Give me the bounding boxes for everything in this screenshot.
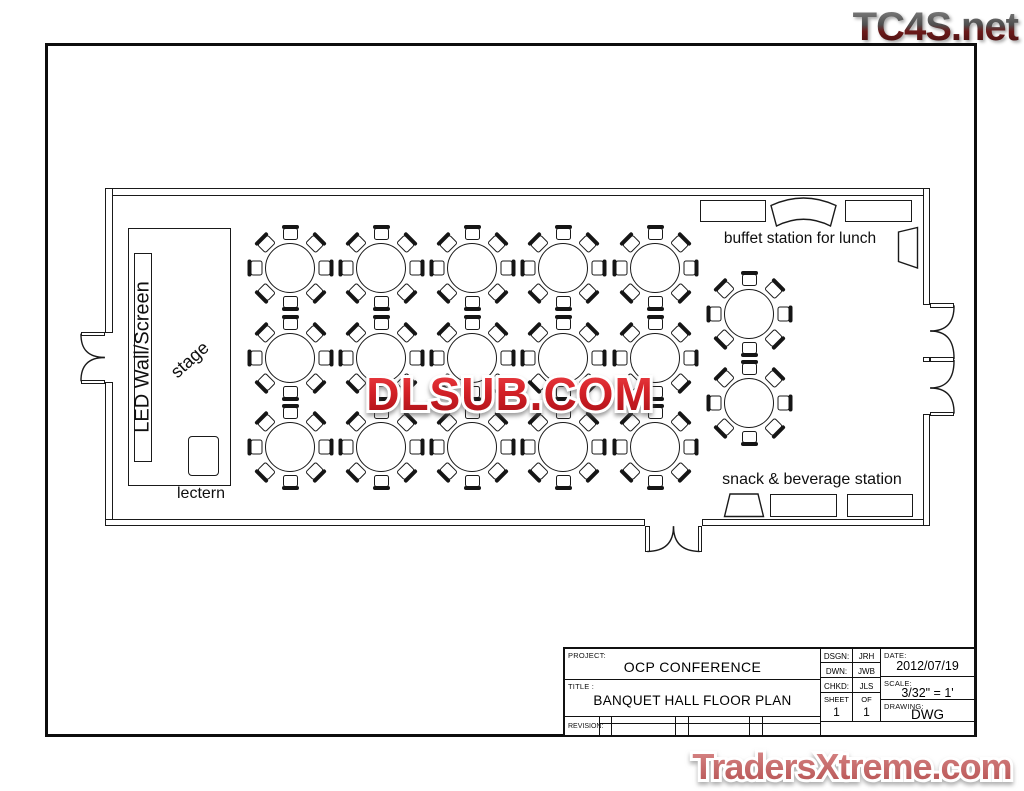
title-label: TITLE :: [568, 682, 594, 691]
project-cell: PROJECT: OCP CONFERENCE: [565, 649, 821, 680]
dwn-label: DWN:: [821, 667, 852, 676]
table-top: [724, 378, 774, 428]
chair: [318, 351, 330, 366]
chair: [648, 475, 663, 487]
snack-serving-board: [725, 494, 764, 517]
chair: [465, 407, 480, 419]
table-top: [724, 289, 774, 339]
chair: [374, 475, 389, 487]
door-swing-arc: [81, 334, 105, 358]
title-block: PROJECT: OCP CONFERENCE TITLE : BANQUET …: [563, 647, 976, 737]
of-label: OF: [853, 695, 880, 704]
drawing-value: DWG: [881, 707, 974, 722]
chair: [523, 351, 535, 366]
chair: [683, 351, 695, 366]
chair: [709, 307, 721, 322]
chair: [465, 318, 480, 330]
scale-cell: SCALE: 3/32" = 1': [881, 677, 974, 700]
chair: [556, 386, 571, 398]
chair: [648, 228, 663, 240]
table-top: [356, 422, 406, 472]
snack-station-label: snack & beverage station: [722, 471, 902, 489]
door-swing-arc: [930, 388, 954, 414]
chair: [683, 261, 695, 276]
chair: [318, 440, 330, 455]
chair: [283, 318, 298, 330]
chair: [615, 261, 627, 276]
revision-divider: [749, 717, 750, 735]
table-top: [356, 333, 406, 383]
chair: [432, 261, 444, 276]
door-swing-arc: [81, 358, 105, 382]
chair: [615, 440, 627, 455]
table-top: [630, 243, 680, 293]
dwn-value: JWB: [853, 667, 880, 676]
chair: [283, 386, 298, 398]
chair: [432, 440, 444, 455]
chair: [523, 440, 535, 455]
chair: [709, 396, 721, 411]
chair: [374, 407, 389, 419]
chair: [556, 475, 571, 487]
table-top: [356, 243, 406, 293]
chair: [283, 296, 298, 308]
door-swing-arc: [647, 526, 673, 551]
chair: [374, 228, 389, 240]
dwn-label-cell: DWN:: [821, 663, 853, 678]
chair: [465, 296, 480, 308]
chkd-label-cell: CHKD:: [821, 678, 853, 693]
chair: [742, 363, 757, 375]
led-wall-label: LED Wall/Screen: [132, 281, 155, 433]
dsgn-value: JRH: [853, 652, 880, 661]
sheet-number: 1: [821, 705, 852, 719]
lectern: [188, 436, 219, 476]
door-swing-arc: [930, 305, 954, 331]
chair: [648, 296, 663, 308]
chair: [523, 261, 535, 276]
chair: [409, 351, 421, 366]
revision-divider: [675, 717, 676, 735]
dsgn-label: DSGN:: [821, 652, 852, 661]
chair: [556, 407, 571, 419]
chair: [615, 351, 627, 366]
of-number: 1: [853, 705, 880, 719]
snack-table: [770, 494, 837, 517]
chair: [556, 296, 571, 308]
chair: [648, 407, 663, 419]
dsgn-label-cell: DSGN:: [821, 649, 853, 663]
chair: [648, 318, 663, 330]
buffet-table: [845, 200, 912, 222]
chair: [500, 261, 512, 276]
revision-cell: REVISION:: [565, 717, 821, 735]
chair: [318, 261, 330, 276]
table-top: [538, 422, 588, 472]
serving-board-right-wall: [899, 228, 918, 269]
drawing-title: BANQUET HALL FLOOR PLAN: [565, 693, 820, 708]
chair: [374, 386, 389, 398]
chair: [591, 261, 603, 276]
drawing-cell: DRAWING: DWG: [881, 700, 974, 722]
chair: [409, 440, 421, 455]
chair: [283, 407, 298, 419]
chair: [777, 307, 789, 322]
chair: [742, 274, 757, 286]
table-top: [630, 333, 680, 383]
dwn-value-cell: JWB: [853, 663, 881, 678]
buffet-curved-table: [771, 198, 836, 226]
revision-divider: [688, 717, 689, 735]
chair: [742, 342, 757, 354]
revision-divider: [762, 717, 763, 735]
buffet-table: [700, 200, 766, 222]
chair: [683, 440, 695, 455]
blank-cell: [821, 722, 974, 735]
chkd-value-cell: JLS: [853, 678, 881, 693]
table-top: [265, 243, 315, 293]
chair: [374, 296, 389, 308]
revision-divider: [599, 717, 600, 735]
date-cell: DATE: 2012/07/19: [881, 649, 974, 677]
snack-table: [847, 494, 914, 517]
table-top: [265, 422, 315, 472]
sheet-cell: SHEET 1: [821, 693, 853, 722]
chair: [777, 396, 789, 411]
chair: [465, 228, 480, 240]
table-top: [265, 333, 315, 383]
chair: [409, 261, 421, 276]
chair: [250, 351, 262, 366]
chair: [250, 261, 262, 276]
chair: [465, 386, 480, 398]
chair: [432, 351, 444, 366]
chair: [283, 228, 298, 240]
table-top: [447, 422, 497, 472]
chair: [556, 228, 571, 240]
of-cell: OF 1: [853, 693, 881, 722]
chair: [374, 318, 389, 330]
table-top: [630, 422, 680, 472]
chair: [341, 261, 353, 276]
door-swing-arc: [930, 331, 954, 359]
chair: [500, 440, 512, 455]
revision-divider: [611, 717, 612, 735]
table-top: [538, 243, 588, 293]
chair: [283, 475, 298, 487]
door-swing-arc: [674, 526, 700, 551]
project-name: OCP CONFERENCE: [565, 659, 820, 675]
chair: [648, 386, 663, 398]
table-top: [447, 333, 497, 383]
scale-value: 3/32" = 1': [881, 686, 974, 700]
chair: [465, 475, 480, 487]
dsgn-value-cell: JRH: [853, 649, 881, 663]
date-value: 2012/07/19: [881, 659, 974, 673]
table-top: [538, 333, 588, 383]
chkd-value: JLS: [853, 682, 880, 691]
chkd-label: CHKD:: [821, 682, 852, 691]
chair: [500, 351, 512, 366]
sheet-label: SHEET: [821, 695, 852, 704]
revision-midline: [599, 723, 821, 724]
chair: [341, 440, 353, 455]
chair: [591, 351, 603, 366]
title-cell: TITLE : BANQUET HALL FLOOR PLAN: [565, 680, 821, 717]
table-top: [447, 243, 497, 293]
chair: [742, 431, 757, 443]
chair: [556, 318, 571, 330]
floor-plan-page: LED Wall/Screen stage lectern buffet sta…: [0, 0, 1024, 791]
buffet-station-label: buffet station for lunch: [724, 230, 876, 248]
chair: [341, 351, 353, 366]
door-swing-arc: [930, 360, 954, 388]
chair: [250, 440, 262, 455]
chair: [591, 440, 603, 455]
lectern-label: lectern: [177, 485, 225, 503]
